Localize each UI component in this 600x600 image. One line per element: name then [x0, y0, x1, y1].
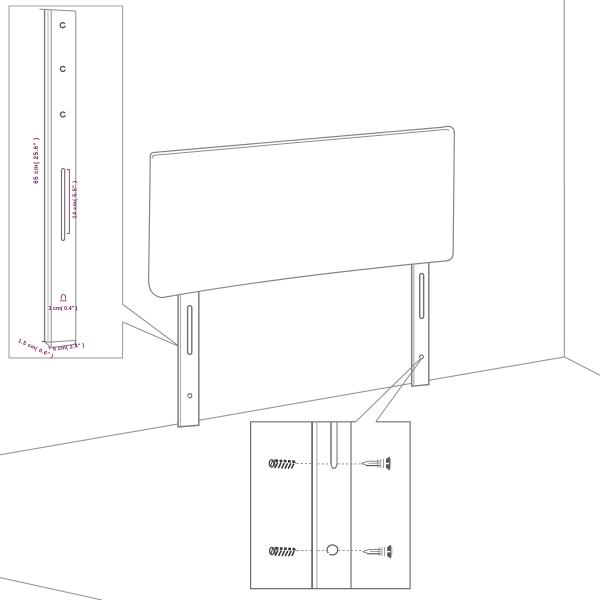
svg-text:65 cm( 25.6″ ): 65 cm( 25.6″ )	[33, 138, 40, 184]
svg-text:1 cm( 0.4″ ): 1 cm( 0.4″ )	[49, 306, 78, 312]
svg-text:14 cm( 5.5″ ): 14 cm( 5.5″ )	[72, 181, 78, 219]
svg-text:1.5 cm( 0.6″ ): 1.5 cm( 0.6″ )	[17, 338, 54, 360]
svg-text:6 cm( 2.4″ ): 6 cm( 2.4″ )	[53, 343, 85, 353]
